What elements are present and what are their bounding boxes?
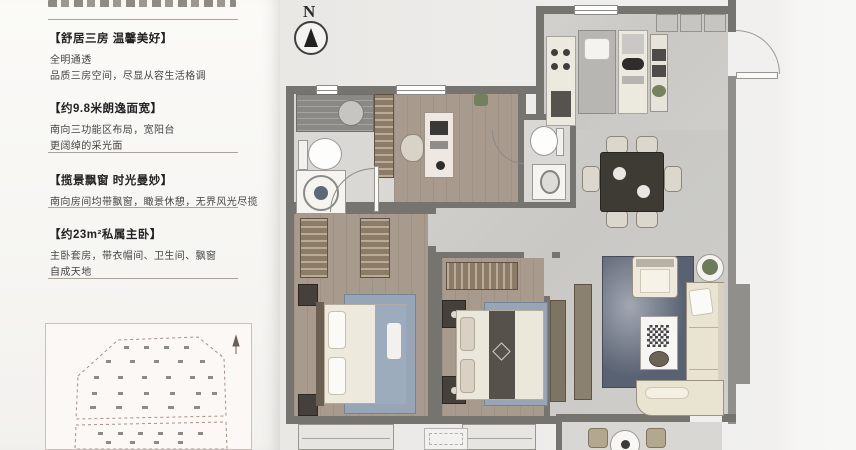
section-4-line-2: 自成天地 — [50, 263, 265, 278]
chaise-cushion — [645, 387, 689, 399]
siteplan-north-icon — [233, 336, 239, 354]
window-study — [396, 85, 446, 95]
bedroom1-nightstand — [298, 394, 318, 416]
truncated-top-text — [48, 0, 236, 7]
wall-bedroom1-right-b — [428, 246, 436, 416]
built-in-oven-icon — [652, 65, 666, 77]
bed-runner — [489, 311, 515, 399]
window-kitchen — [574, 5, 618, 15]
divider — [48, 207, 238, 208]
coffee-table — [640, 316, 678, 370]
section-1-line-1: 全明通透 — [50, 51, 265, 66]
site-plan-drawing — [46, 324, 251, 449]
bathroom-door-leaf — [374, 166, 379, 212]
wall-right-stub — [728, 0, 736, 32]
plate-icon — [637, 185, 650, 198]
wall-kitchen-top — [536, 6, 736, 14]
wall-left-outer — [286, 86, 294, 424]
sofa-pillow-icon — [688, 288, 713, 317]
section-2-line-1: 南向三功能区布局，宽阳台 — [50, 121, 265, 136]
counter-item — [622, 76, 644, 84]
armchair-cushion — [640, 269, 670, 293]
section-3-heading: 【揽景飘窗 时光曼妙】 — [49, 172, 259, 188]
armchair-back — [636, 259, 674, 267]
burner-icon — [563, 63, 570, 70]
kitchen-counter-right — [618, 30, 648, 114]
plant-icon — [702, 259, 718, 275]
site-plan-thumbnail — [45, 323, 252, 450]
divider — [48, 19, 238, 20]
compass-icon — [294, 21, 328, 55]
section-4-heading: 【约23m²私属主卧】 — [49, 226, 259, 242]
island-tray — [584, 38, 610, 60]
kitchen-tall-cabinet — [650, 34, 668, 112]
divider — [48, 152, 238, 153]
kitchen-oven — [551, 91, 571, 117]
dining-chair — [606, 210, 628, 228]
marketing-floorplan-page: 【舒居三房 温馨美好】 全明通透 品质三房空间，尽显从容生活格调 【约9.8米朗… — [0, 0, 856, 450]
section-2-line-2: 更阔绰的采光面 — [50, 137, 265, 152]
bed-throw — [387, 323, 401, 359]
armchair — [632, 256, 678, 298]
desk-item — [430, 141, 448, 149]
bedroom1-nightstand — [298, 284, 318, 306]
exterior-ac-ledge — [736, 284, 750, 384]
ac-platform-dashed — [429, 433, 463, 445]
table-bowl-icon — [649, 351, 669, 367]
fridge-cabinet — [680, 14, 702, 32]
sofa-cushion-line — [689, 369, 718, 370]
north-label: N — [303, 2, 315, 22]
runner-diamond-icon — [492, 342, 510, 360]
bedroom2-bed — [456, 310, 544, 400]
pillow-icon — [460, 359, 475, 393]
walkin-wardrobe — [550, 300, 566, 402]
wall-bottom-bedrooms — [286, 416, 560, 424]
guest-toilet-icon — [530, 126, 558, 156]
burner-icon — [563, 49, 570, 56]
basin-icon — [540, 170, 560, 194]
wall-right-outer — [728, 76, 736, 424]
kitchen-island — [578, 30, 616, 114]
section-2-heading: 【约9.8米朗逸面宽】 — [49, 100, 259, 116]
dining-chair — [636, 210, 658, 228]
section-4-line-1: 主卧套房，带衣帽间、卫生间、飘窗 — [50, 247, 265, 262]
kitchen-sink — [622, 34, 644, 54]
bath-sink-icon — [338, 100, 364, 126]
kitchen-counter-left — [546, 36, 576, 126]
bedroom1-closet — [360, 218, 390, 278]
balcony-floor — [562, 422, 722, 450]
walkin-wardrobe — [574, 284, 592, 400]
wall-guestbath-right — [570, 120, 576, 208]
pillow-icon — [328, 311, 346, 349]
guest-washbasin — [532, 164, 566, 200]
sofa-cushion-line — [689, 327, 718, 328]
dining-chair — [582, 166, 600, 192]
ac-platform — [424, 428, 468, 450]
table-center-icon — [621, 440, 630, 449]
wall-kitchen-left — [536, 14, 544, 120]
bay-window-bedroom1 — [298, 424, 394, 450]
dining-table — [600, 152, 664, 212]
plate-icon — [613, 167, 626, 180]
checkerboard-icon — [647, 325, 669, 347]
wall-balcony-left — [556, 414, 562, 450]
side-table — [696, 254, 724, 282]
fridge-cabinet — [704, 14, 726, 32]
wall-bedroom2-top-a — [436, 252, 524, 258]
kitchen-cooktop-icon — [622, 58, 644, 70]
balcony-chair — [588, 428, 608, 448]
section-1-heading: 【舒居三房 温馨美好】 — [49, 30, 259, 46]
dining-chair — [664, 166, 682, 192]
pillow-icon — [460, 317, 475, 351]
bedroom2-wardrobe — [446, 262, 518, 290]
wall-bedroom1-right-a — [428, 208, 436, 214]
built-in-oven-icon — [652, 49, 666, 61]
entry-door-leaf — [736, 72, 778, 79]
study-desk — [424, 112, 454, 178]
cabinet-plant-icon — [652, 85, 666, 97]
pillow-icon — [328, 357, 346, 395]
washer-door-icon — [314, 186, 328, 200]
toilet-icon — [308, 138, 342, 170]
bedroom1-headboard — [316, 302, 324, 406]
desk-bowl-icon — [436, 161, 445, 170]
toilet-tank — [298, 140, 308, 170]
entry-door-arc — [736, 30, 780, 74]
burner-icon — [551, 63, 558, 70]
section-3-line-1: 南向房间均带飘窗，瞰景休憩，无界风光尽揽 — [50, 193, 265, 208]
compass-needle-icon — [304, 28, 318, 47]
bay-window-bedroom2 — [462, 424, 536, 450]
bedroom1-closet — [300, 218, 328, 278]
wall-bedroom2-top-b — [552, 252, 560, 258]
wall-bottom-living-b — [722, 414, 736, 422]
divider — [48, 278, 238, 279]
fridge-cabinet — [656, 14, 678, 32]
laptop-icon — [430, 121, 448, 135]
balcony-chair — [646, 428, 666, 448]
sofa-chaise — [636, 380, 724, 416]
burner-icon — [551, 49, 558, 56]
study-plant-icon — [474, 94, 488, 106]
study-chair — [400, 134, 424, 162]
section-1-line-2: 品质三房空间，尽显从容生活格调 — [50, 67, 265, 82]
selling-points-panel: 【舒居三房 温馨美好】 全明通透 品质三房空间，尽显从容生活格调 【约9.8米朗… — [0, 0, 280, 450]
bedroom1-bed — [324, 304, 406, 404]
